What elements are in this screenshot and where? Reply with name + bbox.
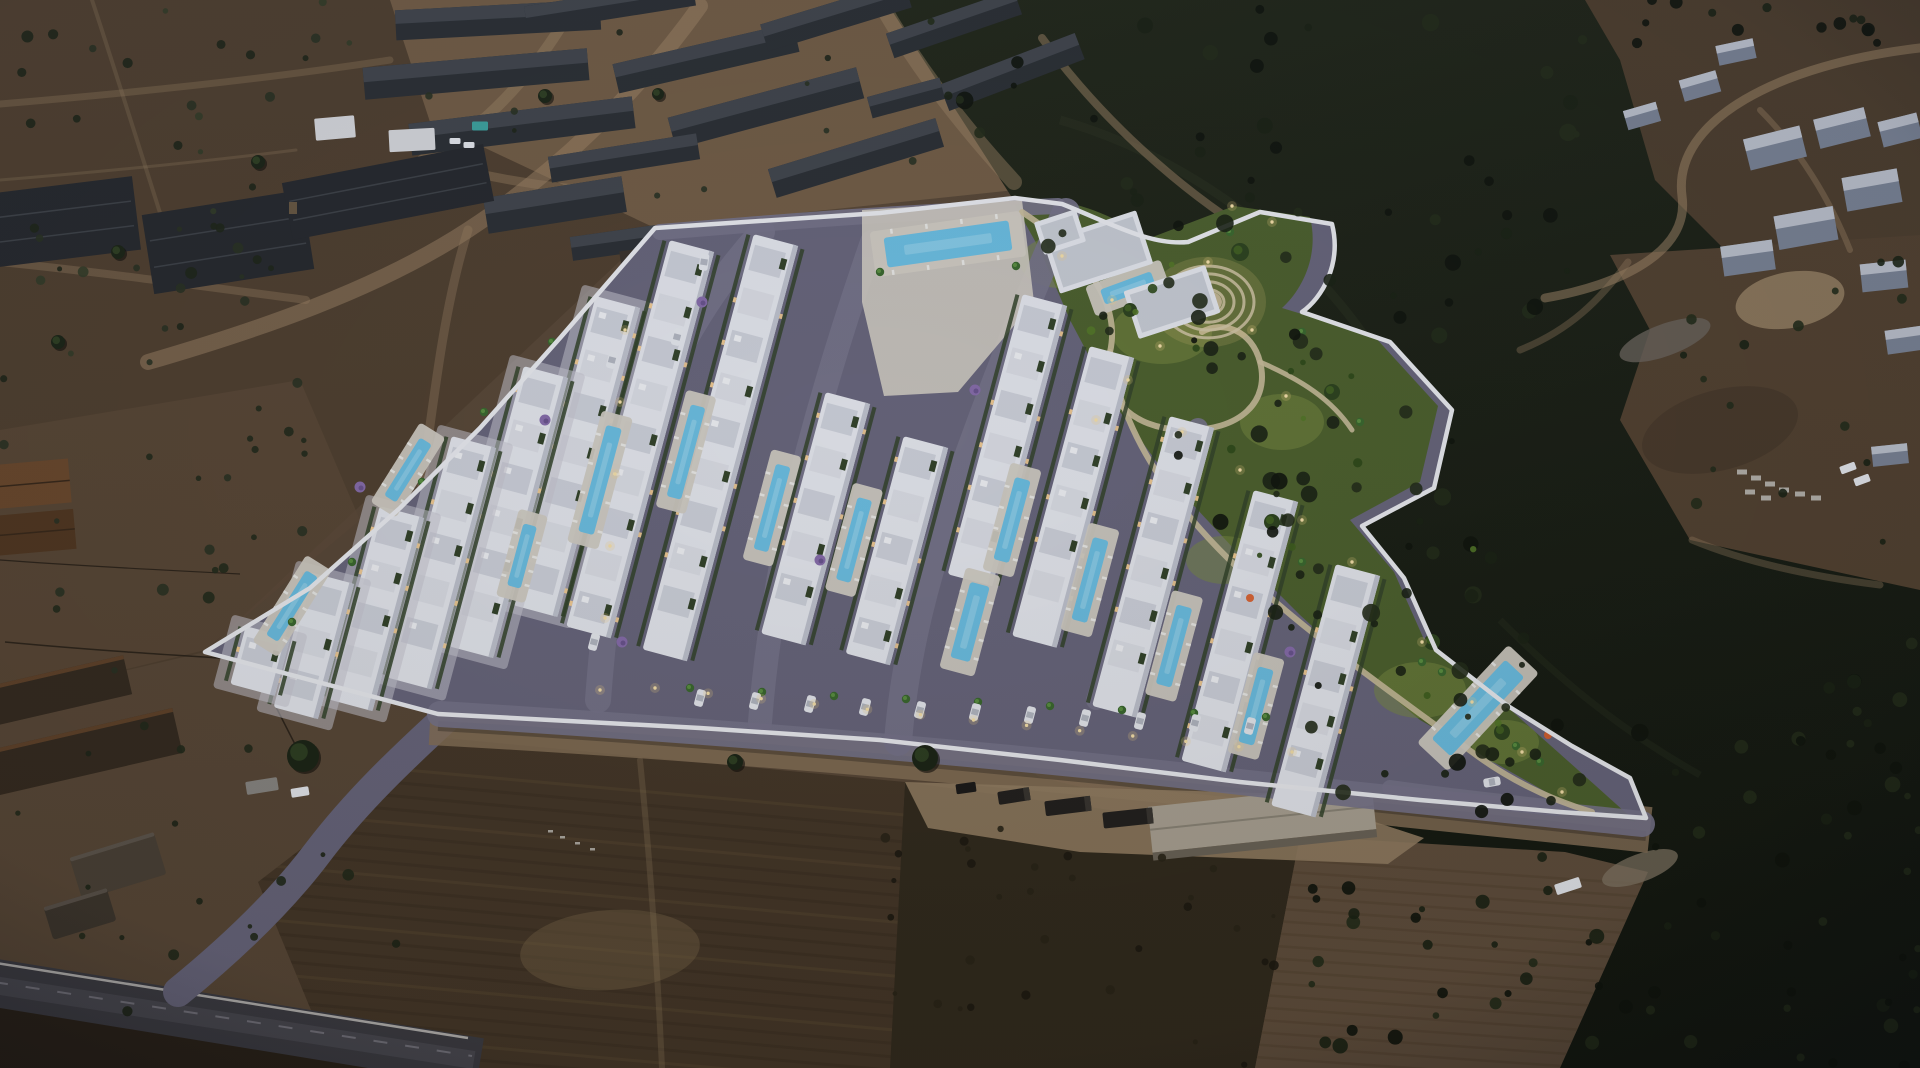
vignette <box>0 0 1920 1068</box>
aerial-development-rendering <box>0 0 1920 1068</box>
aerial-photo-stage <box>0 0 1920 1068</box>
